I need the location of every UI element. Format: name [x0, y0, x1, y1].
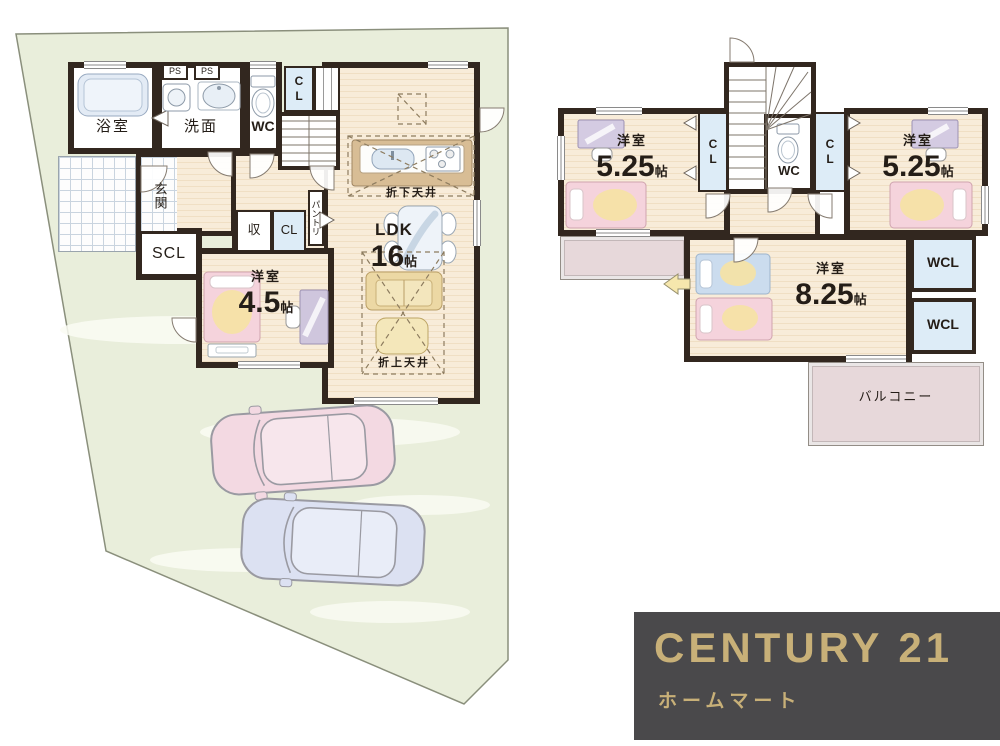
closet-label-wcl-top: WCL [910, 254, 976, 270]
closet-label-cl-hall: CL [274, 223, 304, 238]
room-unit: 帖 [280, 300, 293, 315]
lowered-ceiling-label: 折下天井 [350, 187, 474, 200]
balcony-label: バルコニー [818, 390, 974, 405]
room-type: 洋室 [903, 133, 933, 148]
room-label-ps2: PS [194, 66, 220, 76]
logo-company-text: ホームマート [658, 686, 801, 713]
room-size: 16 [371, 240, 404, 273]
entry-porch-tiles [58, 156, 136, 252]
room-wc-1f [244, 62, 282, 154]
room-unit: 帖 [941, 164, 954, 179]
closet-label-wcl-bottom: WCL [910, 316, 976, 332]
room-label-wash: 洗面 [166, 118, 236, 135]
room-type: LDK [375, 220, 413, 239]
room-unit: 帖 [655, 164, 668, 179]
window [428, 61, 468, 69]
window [250, 61, 276, 69]
century21-logo: CENTURY 21 ホームマート [634, 612, 1000, 740]
room-label-scl: SCL [140, 245, 198, 263]
room-size: 5.25 [882, 150, 940, 183]
window [84, 61, 126, 69]
stairs-1f-box [278, 112, 340, 170]
room-label-western-5-25-right: 洋室 5.25帖 [848, 132, 988, 185]
closet-label-cl-top: CL [284, 70, 314, 108]
room-type: 洋室 [251, 269, 281, 284]
window [928, 107, 968, 115]
room-label-western-8-25: 洋室 8.25帖 [756, 260, 906, 313]
room-label-ldk: LDK 16帖 [348, 220, 440, 275]
logo-brand-text: CENTURY 21 [654, 624, 984, 672]
raised-ceiling-label: 折上天井 [356, 357, 452, 370]
pantry-label: パントリ [309, 194, 323, 242]
bifold-door-icon [314, 66, 340, 112]
room-size: 4.5 [239, 286, 281, 319]
room-unit: 帖 [854, 292, 867, 307]
window [846, 355, 906, 363]
room-wc-2f [764, 114, 814, 192]
closet-label-cl-right: CL [814, 118, 846, 186]
closet-label-cl-left: CL [698, 118, 728, 186]
room-label-bath: 浴室 [78, 118, 148, 135]
room-type: 洋室 [617, 133, 647, 148]
window [981, 186, 989, 224]
window [596, 107, 642, 115]
room-type: 洋室 [816, 261, 846, 276]
room-label-wc-1f: WC [244, 118, 282, 134]
room-label-genkan: 玄関 [150, 170, 170, 222]
window [596, 229, 650, 237]
room-label-ps1: PS [162, 66, 188, 76]
storage-label: 収 [238, 223, 270, 238]
room-unit: 帖 [404, 254, 417, 269]
room-label-western-4-5: 洋室 4.5帖 [210, 268, 322, 321]
room-size: 8.25 [795, 278, 853, 311]
room-label-western-5-25-left: 洋室 5.25帖 [562, 132, 702, 185]
window [238, 361, 300, 369]
window [354, 397, 438, 405]
room-label-wc-2f: WC [764, 164, 814, 179]
room-size: 5.25 [596, 150, 654, 183]
floor-plan-page: 浴室 PS PS 洗面 WC CL 玄関 SCL 収 CL パントリ 洋室 4.… [0, 0, 1000, 746]
room-bath [68, 62, 158, 154]
window [473, 200, 481, 246]
balcony-small [560, 236, 688, 280]
